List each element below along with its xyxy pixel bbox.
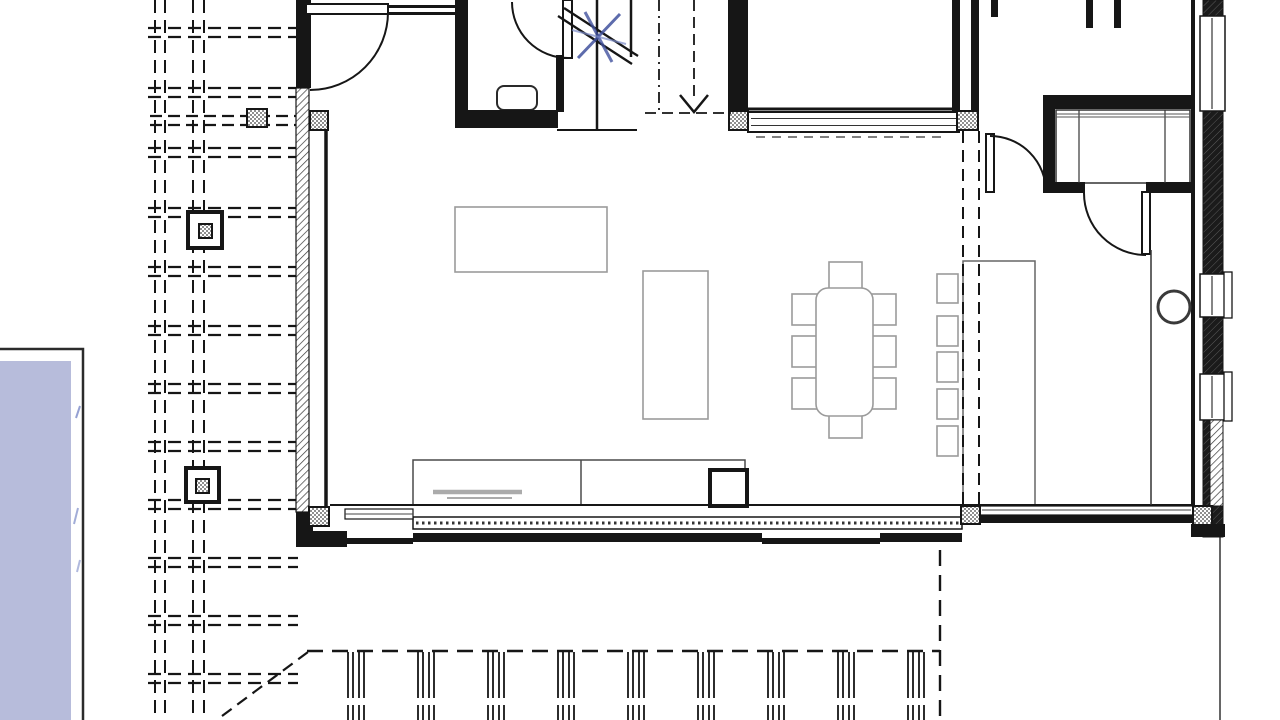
sideboard <box>643 271 708 419</box>
wall-closet-south <box>1043 182 1085 193</box>
stair-arrow-head <box>680 95 708 112</box>
wall-column <box>1193 506 1212 525</box>
house-plan <box>74 0 1232 572</box>
wall-sill-south <box>762 538 880 544</box>
bar-stool <box>937 274 958 303</box>
window-east <box>1210 420 1223 506</box>
wall-sill-south <box>413 533 762 542</box>
wall-north-entry <box>386 5 459 8</box>
wall-room-east <box>952 0 960 112</box>
wall-north-entry <box>386 12 459 15</box>
pergola-pier-core <box>199 224 212 238</box>
round-column <box>1158 291 1190 323</box>
dining-chair <box>829 262 862 291</box>
pool-water <box>0 361 71 720</box>
wall-room-east <box>971 0 979 112</box>
bar-stool <box>937 316 958 346</box>
wall-sill-south <box>298 531 347 547</box>
floor-plan-canvas <box>0 0 1280 720</box>
closet-door-leaf <box>1142 192 1150 254</box>
wall-stair-east <box>728 0 748 110</box>
wall-stub <box>1114 0 1121 28</box>
wall-column <box>957 111 978 130</box>
entry-door-swing <box>310 12 388 90</box>
window-band-north <box>748 112 959 132</box>
pergola-pier-core <box>196 479 209 493</box>
bar-stool <box>937 389 958 419</box>
dining-table <box>816 288 873 416</box>
hall-door-swing <box>990 136 1046 192</box>
wall-east-inner <box>1191 0 1195 507</box>
wall-column <box>309 507 329 526</box>
wall-column <box>729 111 748 130</box>
entry-door-leaf <box>306 4 388 14</box>
wall-sill-south <box>880 533 962 542</box>
hall-door-leaf <box>986 134 994 192</box>
bar-stool <box>937 426 958 456</box>
pergola-grid <box>148 0 298 720</box>
wardrobe <box>1056 110 1190 183</box>
wall-column <box>310 111 328 130</box>
wall-stub <box>991 0 998 17</box>
window-sill-tab <box>1224 372 1232 421</box>
deck <box>222 537 1220 720</box>
wall-stair-west <box>556 55 564 112</box>
stove <box>710 470 747 506</box>
wall-closet-north <box>1043 95 1192 109</box>
swimming-pool <box>0 349 83 720</box>
wall-stub <box>1086 0 1093 28</box>
closet-door-swing <box>1084 193 1146 255</box>
sofa <box>455 207 607 272</box>
wall-bathroom-west <box>455 0 468 112</box>
wall-column <box>961 506 980 524</box>
window-west <box>296 88 309 512</box>
wall-column <box>247 109 267 127</box>
toilet <box>497 86 537 110</box>
bar-stool <box>937 352 958 382</box>
wall-sill-south <box>347 538 413 544</box>
bathroom-door-swing <box>512 2 568 58</box>
window-sill-tab <box>1224 272 1232 318</box>
wall-closet-south <box>1146 182 1192 193</box>
kitchen-island <box>963 261 1035 507</box>
wall-bathroom-south <box>455 110 558 128</box>
floor-plan <box>0 0 1280 720</box>
